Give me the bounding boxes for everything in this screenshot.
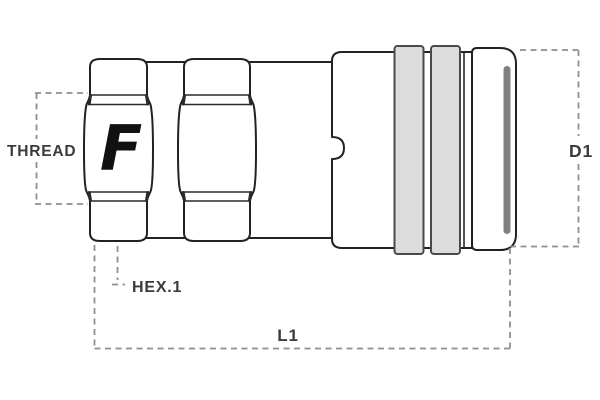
l1-label: L1	[277, 326, 298, 345]
hex1-label: HEX.1	[132, 279, 182, 296]
coupling-diagram: F THREAD HEX.1	[0, 0, 600, 400]
thread-dimension: THREAD	[7, 93, 88, 204]
d1-label: D1	[569, 141, 593, 161]
hex-nut-2-chamfer-mark	[250, 193, 251, 201]
grip-band-2	[431, 46, 460, 254]
hex-nut-2-chamfer-mark	[183, 96, 184, 105]
hex-nut-1-chamfer-mark	[89, 96, 90, 105]
thread-label: THREAD	[7, 143, 76, 160]
hex-nut-1-chamfer-mark	[147, 96, 148, 105]
d1-dimension: D1	[510, 50, 593, 247]
grip-band-1	[395, 46, 424, 254]
hex1-dimension: HEX.1	[112, 246, 182, 296]
hex-nut-1: F	[84, 59, 153, 241]
hex-nut-1-chamfer-mark	[147, 193, 148, 201]
faster-logo-icon: F	[100, 112, 142, 185]
hex-nut-2-chamfer-mark	[250, 96, 251, 105]
hex-nut-1-chamfer-mark	[89, 193, 90, 201]
hex-nut-2	[178, 59, 256, 241]
l1-dimension: L1	[95, 245, 511, 349]
coupling-drawing-canvas: F THREAD HEX.1	[0, 0, 600, 400]
hex-nut-2-chamfer-mark	[183, 193, 184, 201]
hex-nut-2-outline	[178, 59, 256, 241]
end-cap-shading	[504, 66, 511, 234]
